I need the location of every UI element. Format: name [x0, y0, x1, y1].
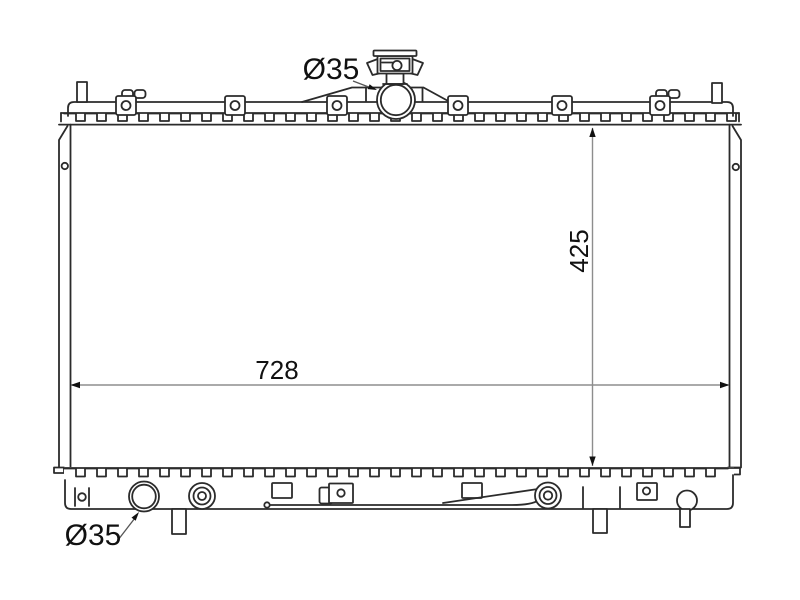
cap-top-bar: [374, 51, 417, 57]
label-bottom-port-diameter: Ø35: [65, 519, 122, 552]
inlet-port-inner: [132, 485, 156, 509]
radiator-line-drawing: Ø35 728 425 Ø35: [0, 0, 800, 600]
label-top-port-diameter: Ø35: [303, 53, 360, 86]
dimension-lines: [71, 128, 729, 466]
part-linework: [54, 51, 741, 535]
lip-end: [264, 502, 269, 507]
top-pin-left: [77, 82, 87, 102]
arrow-down: [589, 457, 595, 467]
cooler-fitting-right: [535, 483, 561, 509]
right-side-frame: [728, 125, 741, 475]
frame-hole-left: [62, 163, 68, 169]
filler-neck-inner: [381, 85, 411, 115]
bottom-pin: [172, 509, 186, 534]
arrow-left: [71, 382, 81, 388]
arrow-bottom-port: [132, 512, 140, 521]
radiator-drawing-canvas: Ø35 728 425 Ø35: [0, 0, 800, 600]
square-hole: [462, 483, 482, 498]
label-core-width: 728: [255, 355, 298, 385]
arrow-right: [720, 382, 730, 388]
left-side-frame: [54, 125, 71, 473]
label-core-height: 425: [564, 229, 594, 272]
cooler-fitting-left: [189, 483, 215, 509]
frame-hole-right: [733, 164, 739, 170]
top-pin-right: [712, 83, 722, 103]
bottom-tank: [64, 467, 740, 534]
square-hole: [272, 483, 292, 498]
cap-neck: [387, 74, 404, 85]
frame-foot-left: [54, 468, 64, 474]
arrowheads: [71, 84, 730, 521]
bottom-pin: [680, 509, 690, 527]
bottom-pin: [593, 509, 607, 533]
end-circle-boss: [677, 491, 697, 511]
drain-hole: [78, 493, 86, 501]
arrow-up: [589, 128, 595, 138]
